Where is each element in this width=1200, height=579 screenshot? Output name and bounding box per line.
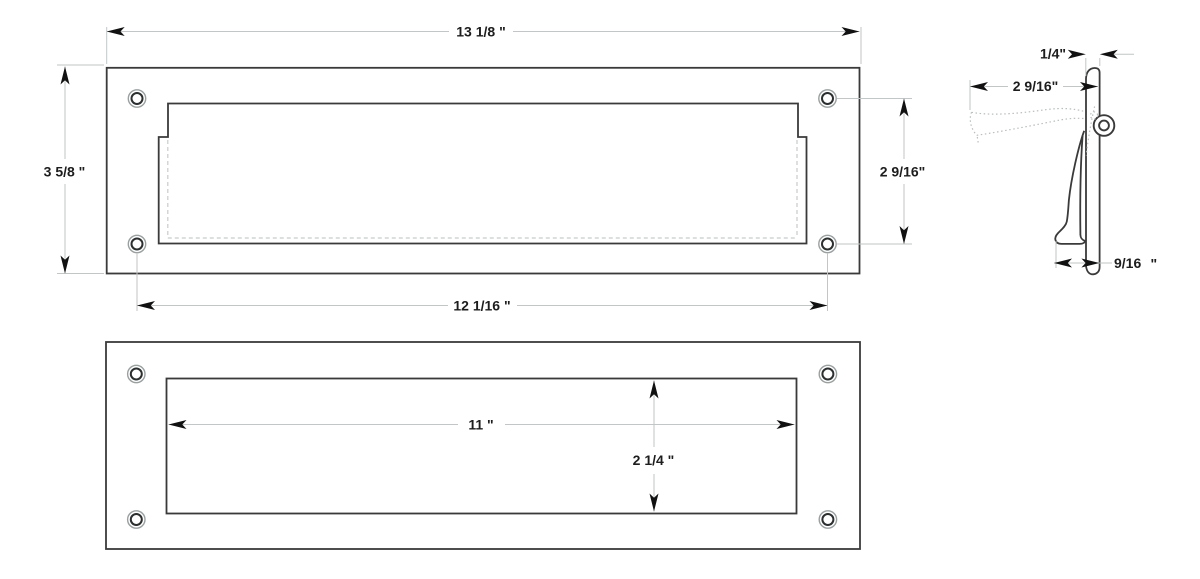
svg-text:1/4": 1/4" [1040, 46, 1066, 62]
svg-text:12 1/16 ": 12 1/16 " [453, 298, 510, 314]
svg-text:": " [1151, 256, 1158, 272]
svg-text:2 9/16": 2 9/16" [1013, 78, 1059, 94]
svg-text:2 1/4 ": 2 1/4 " [633, 452, 675, 468]
svg-text:13 1/8 ": 13 1/8 " [456, 24, 505, 40]
svg-text:2 9/16": 2 9/16" [880, 164, 926, 180]
svg-text:11 ": 11 " [468, 417, 493, 433]
svg-text:3 5/8 ": 3 5/8 " [44, 164, 86, 180]
svg-text:9/16: 9/16 [1114, 255, 1141, 271]
